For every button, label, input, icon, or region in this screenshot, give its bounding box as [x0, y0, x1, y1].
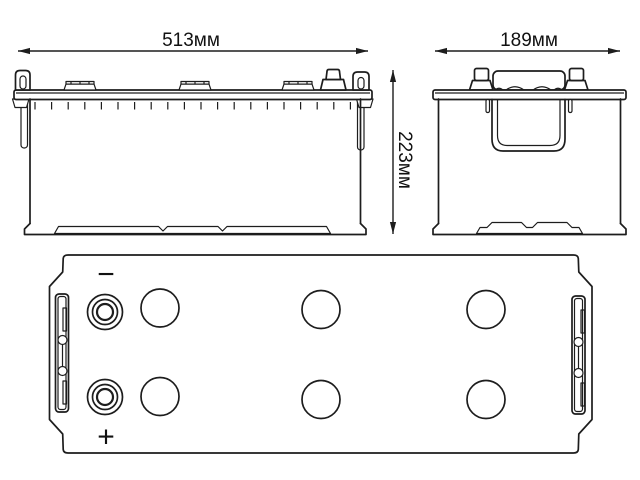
height-dimension-label: 223мм [394, 131, 415, 189]
vent-cap-group [179, 82, 211, 91]
handle-pivot [574, 369, 583, 378]
front-lid [14, 90, 372, 100]
top-left-handle [56, 294, 69, 412]
side-lid [433, 90, 626, 100]
front-foot-ledge [55, 227, 331, 234]
side-bottom-edge [433, 224, 626, 235]
front-cell-ticks [35, 102, 350, 110]
top-view-outline [50, 255, 593, 453]
terminal-base [321, 80, 347, 91]
side-foot-ledge [477, 223, 583, 234]
handle-pivot [58, 336, 67, 345]
front-view-battery [13, 70, 374, 235]
diagram-svg: 513мм [0, 0, 640, 480]
handle-pivot [58, 367, 67, 376]
vent-cap-base [64, 84, 96, 90]
side-view: 189мм [433, 30, 626, 235]
side-width-dimension-label: 189мм [500, 30, 558, 51]
vent-cap-base [179, 84, 211, 90]
front-right-clip [353, 72, 369, 90]
side-view-battery [433, 69, 626, 235]
vent-cap-group [282, 82, 314, 91]
side-carry-handle [492, 100, 565, 152]
vent-cap-group [64, 82, 96, 91]
side-pin [486, 100, 490, 113]
handle-outer [492, 100, 565, 152]
terminal-base [470, 81, 494, 91]
handle-inner [498, 100, 561, 146]
side-pin [569, 100, 573, 113]
front-vent-caps [64, 82, 314, 91]
height-dimension: 223мм [393, 70, 415, 234]
clip-slot [358, 78, 364, 90]
front-width-dimension: 513мм [18, 30, 368, 51]
side-width-dimension: 189мм [435, 30, 620, 51]
top-right-handle [572, 296, 585, 414]
clip-slot [20, 76, 26, 89]
minus-sign: − [97, 258, 115, 291]
top-view: − + [50, 255, 593, 454]
terminal-top [475, 69, 489, 81]
side-center-cap [493, 71, 565, 90]
front-view: 513мм [13, 30, 416, 235]
front-body-walls [30, 99, 361, 224]
front-width-dimension-label: 513мм [162, 30, 220, 51]
battery-technical-drawing: 513мм [0, 0, 640, 480]
front-terminal-post [321, 70, 347, 91]
handle-pivot [574, 338, 583, 347]
terminal-top [570, 69, 584, 81]
terminal-base [565, 81, 589, 91]
plus-sign: + [97, 421, 115, 454]
front-left-clip [16, 71, 31, 91]
side-body-walls [439, 99, 621, 224]
vent-cap-base [282, 84, 314, 90]
front-bottom-edge [25, 224, 367, 235]
terminal-top [326, 70, 341, 80]
